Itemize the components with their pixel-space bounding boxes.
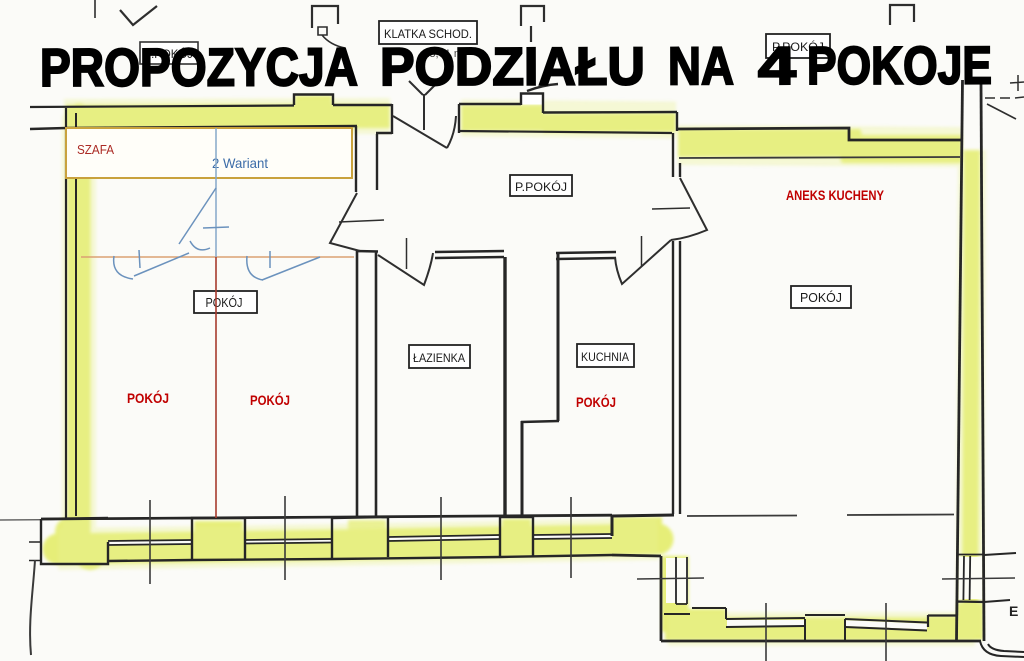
svg-text:POKOJE: POKOJE xyxy=(807,37,992,96)
svg-text:SZAFA: SZAFA xyxy=(77,143,115,157)
svg-text:POKÓJ: POKÓJ xyxy=(576,393,616,410)
svg-text:POKÓJ: POKÓJ xyxy=(250,391,290,408)
svg-text:4: 4 xyxy=(758,37,796,96)
svg-text:KUCHNIA: KUCHNIA xyxy=(581,350,629,364)
svg-text:E: E xyxy=(1009,603,1018,619)
svg-text:PODZIAŁU: PODZIAŁU xyxy=(380,37,645,97)
svg-text:POKÓJ: POKÓJ xyxy=(206,295,243,310)
svg-text:POKÓJ: POKÓJ xyxy=(800,290,842,305)
svg-text:PROPOZYCJA: PROPOZYCJA xyxy=(40,38,358,98)
svg-text:NA: NA xyxy=(668,37,734,96)
svg-text:ŁAZIENKA: ŁAZIENKA xyxy=(413,351,465,365)
svg-text:ANEKS KUCHENY: ANEKS KUCHENY xyxy=(786,187,885,203)
svg-text:P.POKÓJ: P.POKÓJ xyxy=(515,179,567,194)
svg-text:POKÓJ: POKÓJ xyxy=(127,389,169,406)
svg-text:2 Wariant: 2 Wariant xyxy=(212,155,268,171)
